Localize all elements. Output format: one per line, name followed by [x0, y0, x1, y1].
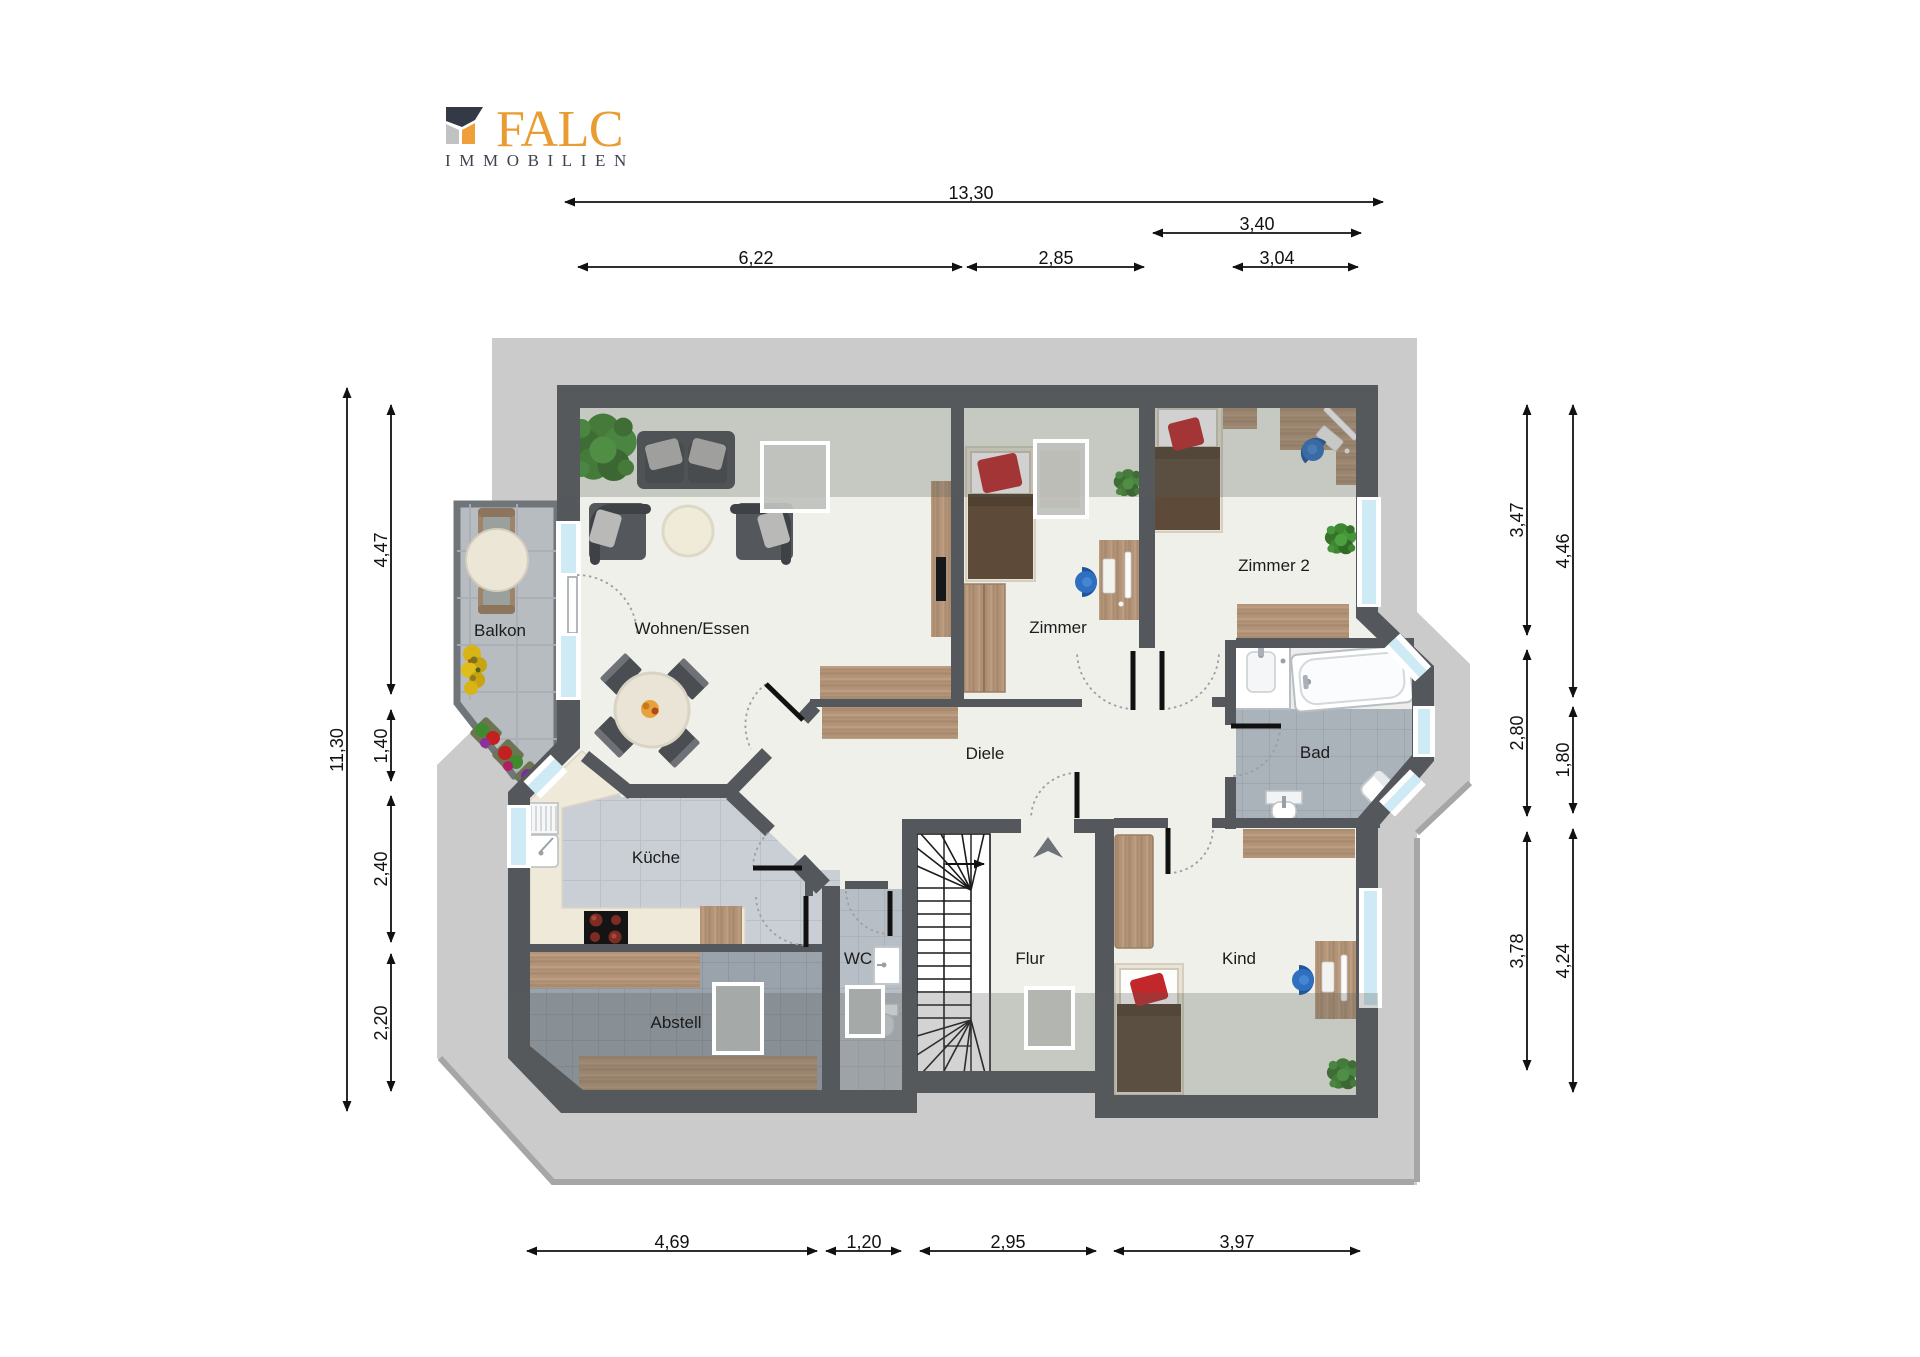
svg-text:4,47: 4,47 — [371, 532, 391, 567]
svg-text:3,04: 3,04 — [1259, 248, 1294, 268]
svg-text:Balkon: Balkon — [474, 621, 526, 640]
svg-text:2,85: 2,85 — [1038, 248, 1073, 268]
svg-text:2,95: 2,95 — [990, 1232, 1025, 1252]
svg-text:Diele: Diele — [966, 744, 1005, 763]
svg-text:Wohnen/Essen: Wohnen/Essen — [635, 619, 750, 638]
svg-text:4,69: 4,69 — [654, 1232, 689, 1252]
svg-text:Bad: Bad — [1300, 743, 1330, 762]
svg-text:IMMOBILIEN: IMMOBILIEN — [445, 151, 635, 170]
svg-text:1,80: 1,80 — [1553, 742, 1573, 777]
svg-text:3,40: 3,40 — [1239, 214, 1274, 234]
svg-text:1,40: 1,40 — [371, 728, 391, 763]
svg-text:3,47: 3,47 — [1507, 502, 1527, 537]
svg-text:2,20: 2,20 — [371, 1005, 391, 1040]
svg-text:Kind: Kind — [1222, 949, 1256, 968]
svg-text:3,97: 3,97 — [1219, 1232, 1254, 1252]
svg-text:Abstell: Abstell — [650, 1013, 701, 1032]
svg-text:Flur: Flur — [1015, 949, 1045, 968]
svg-text:3,78: 3,78 — [1507, 933, 1527, 968]
svg-text:Zimmer: Zimmer — [1029, 618, 1087, 637]
svg-text:Küche: Küche — [632, 848, 680, 867]
svg-text:2,40: 2,40 — [371, 851, 391, 886]
svg-text:4,24: 4,24 — [1553, 943, 1573, 978]
svg-text:Zimmer 2: Zimmer 2 — [1238, 556, 1310, 575]
svg-text:4,46: 4,46 — [1553, 533, 1573, 568]
svg-text:1,20: 1,20 — [846, 1232, 881, 1252]
svg-text:11,30: 11,30 — [327, 728, 347, 772]
svg-text:13,30: 13,30 — [948, 183, 993, 203]
svg-text:WC: WC — [844, 949, 872, 968]
svg-text:2,80: 2,80 — [1507, 715, 1527, 750]
svg-text:FALC: FALC — [496, 101, 623, 158]
svg-text:6,22: 6,22 — [738, 248, 773, 268]
